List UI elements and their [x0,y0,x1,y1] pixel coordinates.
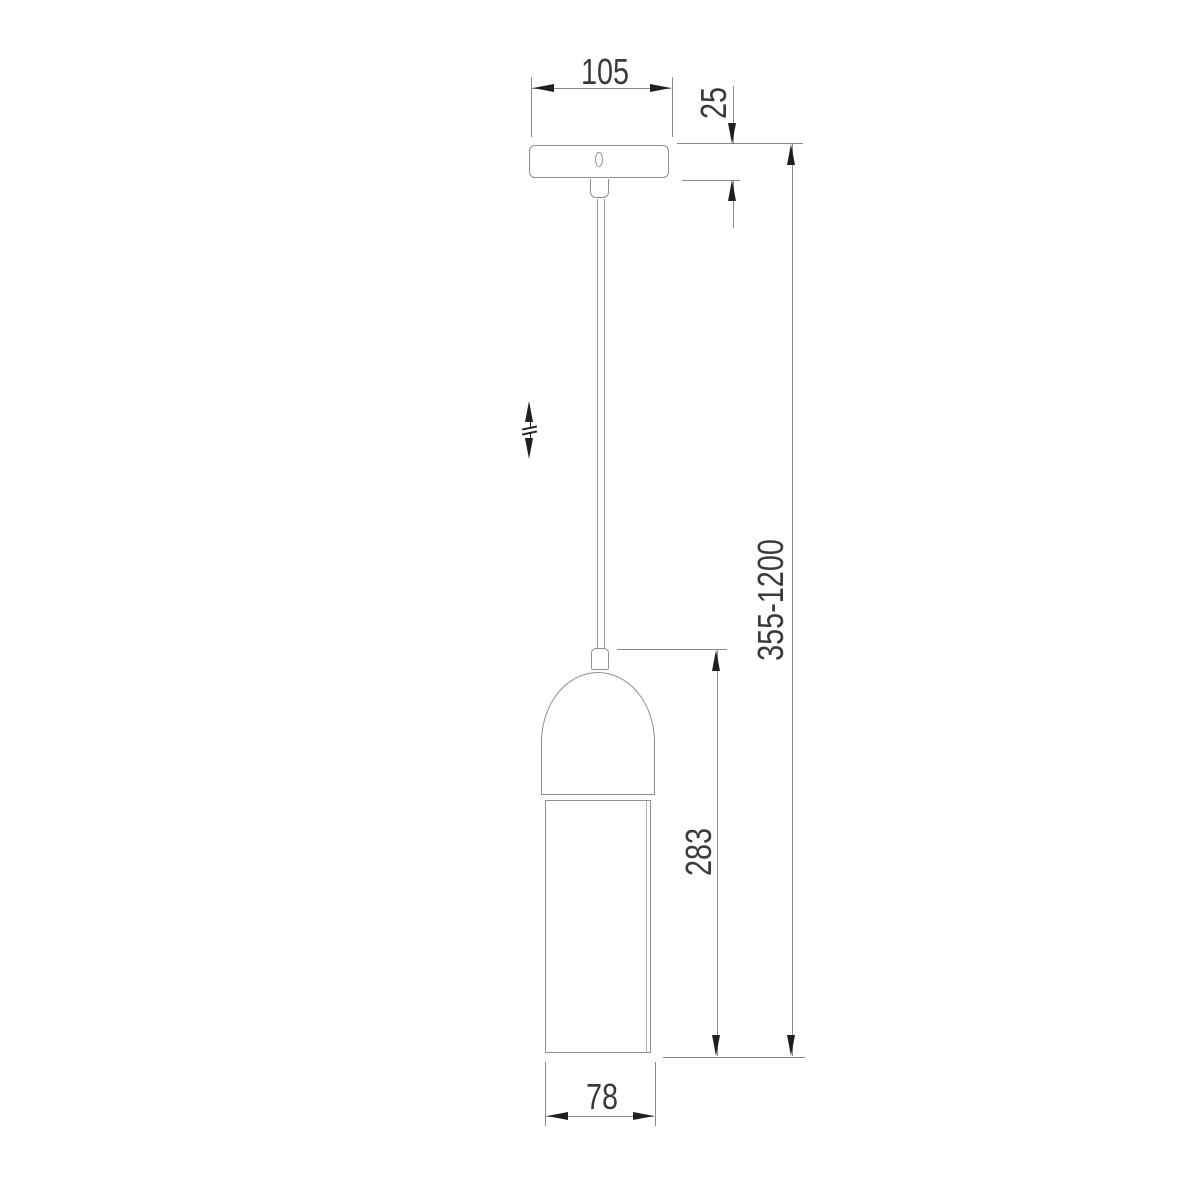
dim-line-overall-height [792,144,793,1056]
ext-line-canopy-top [677,143,803,144]
ext-line-shade-top [617,649,727,650]
ext-line-shade-bottom [663,1057,805,1058]
ext-line-canopy-right [672,77,673,137]
arrowhead-right-icon [650,84,671,92]
ext-line-canopy-left [531,77,532,137]
cord-grip [590,179,609,198]
suspension-cord [597,199,605,649]
arrowhead-down-icon [712,1035,720,1056]
overall-height-label: 355-1200 [753,520,789,680]
lamp-holder [591,648,609,670]
arrowhead-down-icon [787,1035,795,1056]
dome-shade [541,672,655,795]
ext-line-shade-right [655,1062,656,1126]
height-adjust-down-arrow-icon [525,438,533,459]
canopy-height-label: 25 [696,71,732,135]
drawing-canvas: 105 25 355-1200 283 78 [0,0,1200,1200]
arrowhead-up-icon [787,144,795,165]
arrowhead-up-icon [712,650,720,671]
arrowhead-left-icon [533,84,554,92]
cylinder-shade [545,800,651,1053]
shade-width-label: 78 [554,1079,650,1115]
shade-height-label: 283 [681,804,717,900]
height-adjust-break-slash-1 [522,425,537,430]
canopy-width-label: 105 [557,54,653,90]
canopy-hole [595,152,603,167]
arrowhead-up-icon [728,180,736,201]
glass-inner-line [646,801,647,1052]
